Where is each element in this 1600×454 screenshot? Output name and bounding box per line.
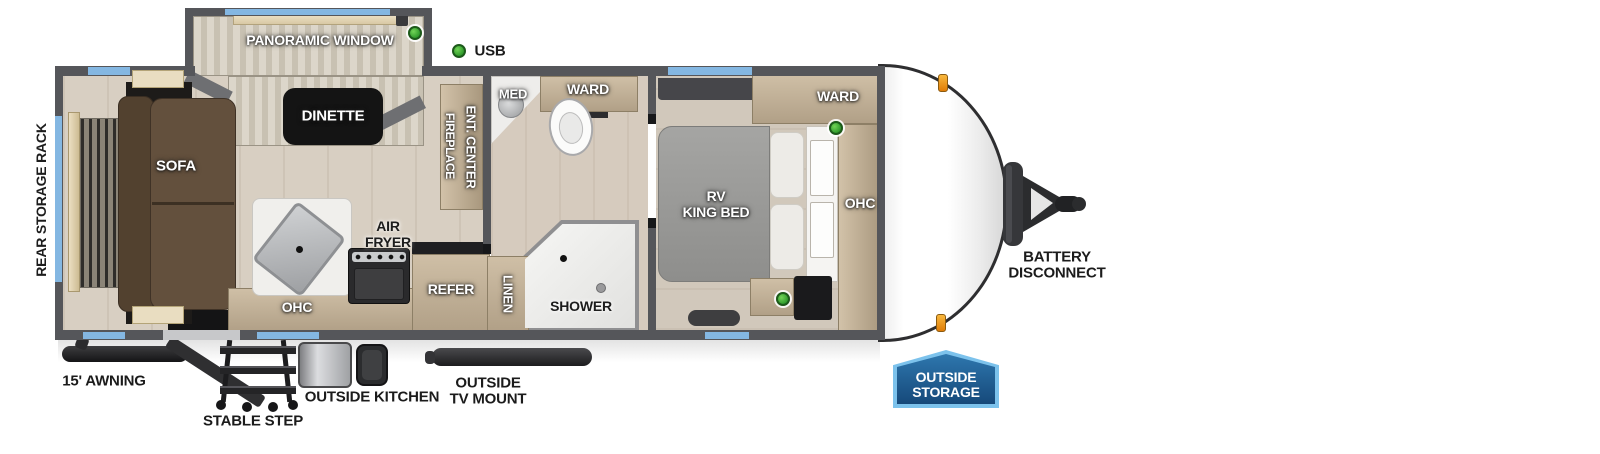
window-rear-side — [55, 116, 62, 282]
tv-mount-cap — [425, 351, 435, 364]
window-top-left — [88, 67, 130, 75]
tray-top — [132, 70, 184, 88]
bedroom-wall-lower — [648, 220, 656, 330]
cart-shelf-2 — [220, 366, 296, 374]
panoramic-window-label: PANORAMIC WINDOW — [246, 33, 393, 47]
bath-ward-label: WARD — [567, 82, 609, 96]
tv-mount-label-line2: TV MOUNT — [450, 392, 527, 407]
bedroom-ohc — [838, 124, 882, 332]
battery-disconnect-label-line1: BATTERY — [1023, 250, 1091, 265]
kitchen-ohc-label: OHC — [282, 300, 313, 314]
wall-top-right — [422, 66, 885, 76]
stove-knob-strip — [352, 252, 406, 262]
window-bedroom-top — [668, 67, 752, 75]
shower-handle — [596, 283, 606, 293]
usb-dot-legend — [452, 44, 466, 58]
bedroom-tv — [794, 276, 832, 320]
sofa-cushion-split — [152, 202, 234, 205]
king-bed-label-line2: KING BED — [683, 205, 750, 219]
fireplace-label: FIREPLACE — [444, 113, 456, 179]
cart-wheel-2 — [242, 402, 252, 412]
shower-label: SHOWER — [550, 299, 612, 313]
refer-label: REFER — [428, 282, 474, 296]
sink-drain — [296, 246, 303, 253]
wall-front — [877, 66, 885, 340]
window-bottom-2 — [257, 332, 319, 339]
shelf-drawer-2 — [810, 202, 834, 258]
med-label: MED — [499, 88, 527, 101]
sofa-back — [118, 96, 154, 312]
window-bottom-1 — [83, 332, 125, 339]
rear-storage-rack-label: REAR STORAGE RACK — [34, 123, 48, 276]
air-fryer-label-line2: FRYER — [365, 235, 411, 249]
rv-floorplan: BATTERY DISCONNECT PANORAMIC WINDOW DINE… — [0, 0, 1600, 454]
bath-wall-left — [483, 76, 491, 252]
ent-center-label: ENT. CENTER — [465, 105, 478, 188]
entry-door-gap — [163, 330, 240, 340]
awning-label: 15' AWNING — [62, 374, 146, 389]
outside-storage-label-line1: OUTSIDE — [916, 370, 977, 384]
outside-kitchen-label: OUTSIDE KITCHEN — [305, 390, 440, 405]
sofa-label: SOFA — [156, 159, 196, 174]
usb-dot-bedroom-bottom — [776, 292, 790, 306]
tv-mount-label-line1: OUTSIDE — [455, 376, 520, 391]
air-fryer-label-line1: AIR — [376, 219, 400, 233]
stable-step-cart — [214, 338, 300, 412]
cart-wheel-4 — [288, 400, 298, 410]
usb-dot-dinette — [408, 26, 422, 40]
outside-kitchen-griddle — [298, 342, 352, 388]
cart-shelf-1 — [220, 346, 296, 354]
window-bedroom-bottom — [705, 332, 749, 339]
bed-pillow-2 — [770, 204, 804, 270]
bedroom-ward-label: WARD — [817, 89, 859, 103]
outside-kitchen-pod-inner — [362, 350, 382, 380]
wall-bottom-right — [240, 330, 885, 340]
shelf-drawer-1 — [810, 140, 834, 196]
cart-wheel-1 — [216, 400, 226, 410]
stable-step-label: STABLE STEP — [203, 414, 303, 429]
slide-wall-right — [424, 8, 432, 74]
storage-rack-rail — [68, 112, 80, 292]
bedroom-doorstop-top — [648, 114, 656, 124]
slide-window — [225, 9, 390, 15]
hitch-icon — [995, 158, 1087, 254]
tray-bottom — [132, 306, 184, 324]
outside-storage-label-line2: STORAGE — [912, 385, 980, 399]
usb-legend-label: USB — [474, 44, 505, 59]
clearance-marker-bottom — [936, 314, 946, 332]
oven-door — [354, 268, 404, 300]
tv-mount-bar — [432, 348, 592, 366]
storage-rack-slats — [80, 118, 120, 288]
slide-wall-left — [185, 8, 193, 74]
usb-dot-bedroom-top — [829, 121, 843, 135]
bath-doorstop — [483, 244, 491, 254]
bed-pillow-1 — [770, 132, 804, 198]
dinette-label: DINETTE — [302, 109, 365, 124]
trailer-front-nose — [878, 64, 1008, 342]
bedroom-doorstop-bottom — [648, 218, 656, 228]
battery-disconnect-label-line2: DISCONNECT — [1008, 266, 1105, 281]
king-bed-label-line1: RV — [707, 189, 726, 203]
linen-label: LINEN — [502, 275, 515, 313]
clearance-marker-top — [938, 74, 948, 92]
bedroom-window-valance — [688, 310, 740, 326]
bedroom-ohc-label: OHC — [845, 196, 876, 210]
shower-drain — [560, 255, 567, 262]
cart-wheel-3 — [268, 402, 278, 412]
cart-shelf-3 — [220, 386, 296, 394]
